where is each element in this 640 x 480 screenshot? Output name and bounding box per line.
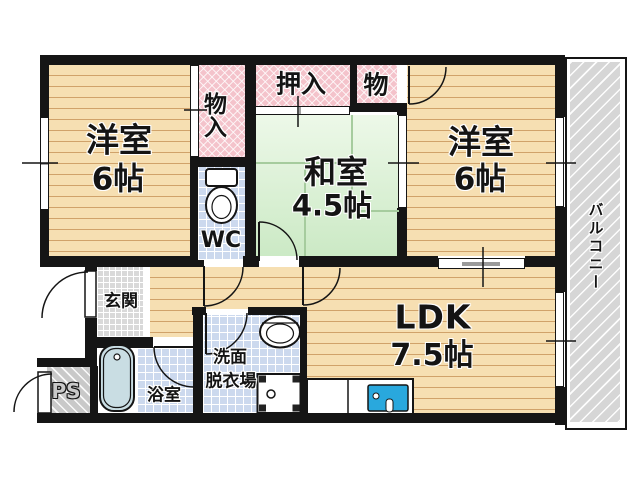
- hallway-stub-floor: [150, 267, 193, 337]
- washroom-label-line1: 洗面: [213, 350, 247, 367]
- ldk-size: 7.5帖: [390, 341, 473, 371]
- room-western-left-floor: [49, 65, 190, 256]
- closet-oshiire-label: 押入: [276, 72, 326, 97]
- wall-segment: [555, 387, 565, 425]
- wall-segment: [397, 104, 407, 115]
- bathroom-label: 浴室: [147, 388, 181, 405]
- balcony-label: バルコニー: [588, 202, 603, 292]
- room-japanese-label: 和室: [304, 156, 368, 188]
- room-western-left-size: 6帖: [92, 165, 145, 196]
- wall-segment: [40, 256, 190, 267]
- window-balcony-ldk: [556, 293, 564, 387]
- wall-segment: [193, 307, 203, 413]
- entrance-door-arc: [42, 272, 88, 318]
- wall-segment: [299, 256, 438, 267]
- sliding-door-oshiire: [256, 107, 350, 115]
- entrance-label: 玄関: [104, 294, 138, 311]
- room-western-left-label: 洋室: [86, 124, 152, 157]
- entrance-step: [143, 267, 150, 337]
- wall-segment: [350, 65, 357, 103]
- ldk-label: LDK: [395, 301, 472, 334]
- washroom-label-line2: 脱衣場: [206, 374, 257, 391]
- wall-segment: [40, 55, 565, 65]
- room-western-right-size: 6帖: [454, 165, 507, 196]
- window-left: [41, 118, 49, 210]
- wall-segment: [85, 267, 97, 271]
- wall-segment: [555, 55, 565, 117]
- floorplan: 洋室 6帖 洋室 6帖 和室 4.5帖 LDK 7.5帖 押入 物 物入 WC …: [0, 0, 640, 480]
- sliding-door-washitsu-yoshitsu: [399, 116, 407, 208]
- window-ldk-top-glass: [462, 262, 500, 266]
- wall-segment: [85, 318, 97, 366]
- room-western-right-label: 洋室: [448, 126, 514, 159]
- wall-segment: [40, 55, 49, 117]
- wall-segment: [190, 157, 198, 267]
- closet-mono-label: 物: [363, 73, 388, 98]
- pipe-space-label: PS: [51, 381, 80, 401]
- wall-segment: [40, 210, 49, 267]
- wall-segment: [90, 366, 98, 413]
- wc-label: WC: [201, 230, 241, 252]
- wall-segment: [37, 413, 565, 423]
- entrance-door-leaf: [85, 271, 96, 317]
- wall-segment: [300, 308, 307, 413]
- wall-segment: [397, 208, 407, 267]
- room-japanese-size: 4.5帖: [292, 192, 372, 221]
- wall-segment: [190, 157, 247, 167]
- closet-mononyu-label: 物入: [201, 92, 224, 138]
- wall-segment: [555, 207, 565, 292]
- wall-segment: [248, 307, 307, 315]
- wall-segment: [245, 65, 256, 267]
- window-balcony-bedroom: [556, 118, 564, 207]
